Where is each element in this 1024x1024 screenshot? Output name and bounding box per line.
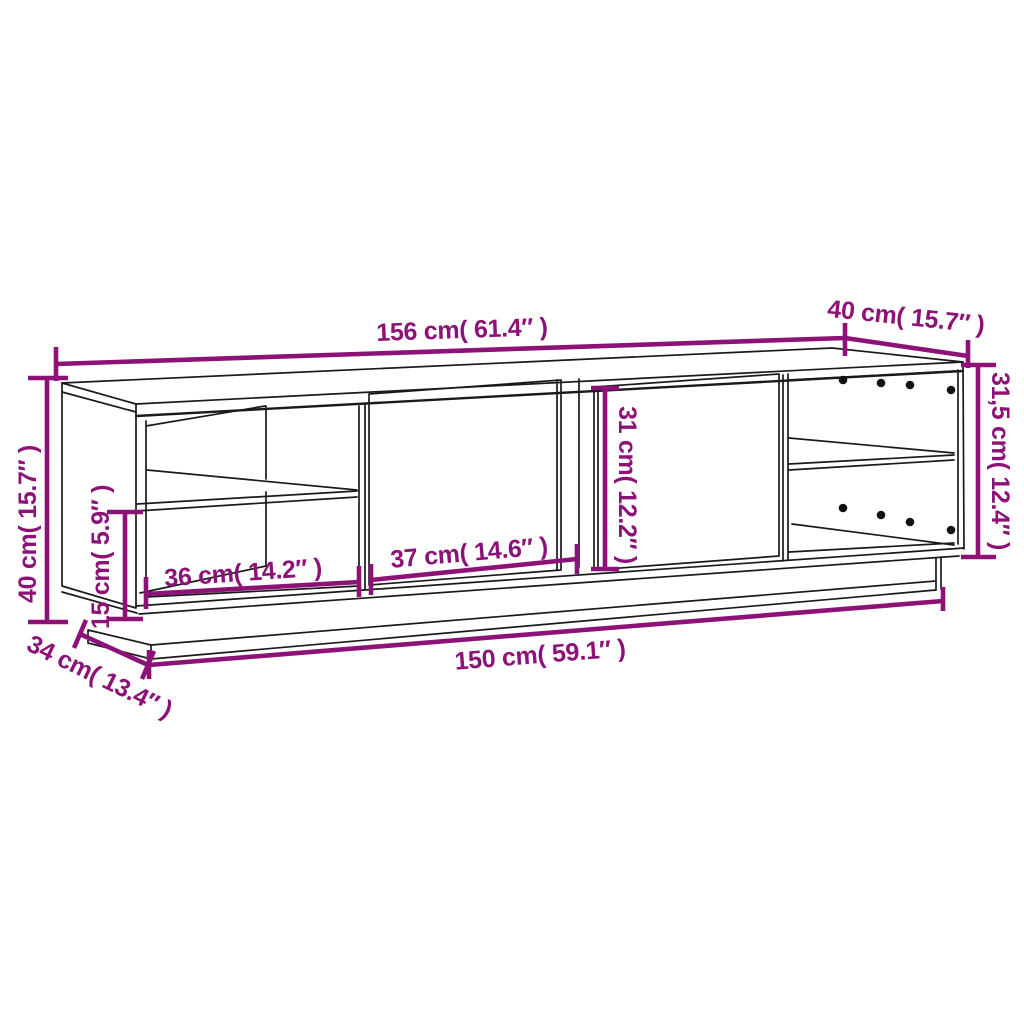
dim-door-height-label: 31 cm( 12.2″ ) xyxy=(613,406,641,564)
divider-left xyxy=(359,405,365,591)
peg-hole-dot xyxy=(947,526,956,535)
left-shelf xyxy=(137,470,357,511)
plinth-right-corner-edges xyxy=(936,557,941,590)
dimension-diagram: 156 cm( 61.4″ ) 40 cm( 15.7″ ) 31,5 cm( … xyxy=(0,0,1024,1024)
peg-hole-dot xyxy=(877,511,886,520)
dim-right-height-label: 31,5 cm( 12.4″ ) xyxy=(986,372,1014,550)
dim-top-depth-label: 40 cm( 15.7″ ) xyxy=(826,295,986,339)
dim-lower-opening-label: 15 cm( 5.9″ ) xyxy=(87,485,115,629)
dim-left-height-label: 40 cm( 15.7″ ) xyxy=(14,445,42,603)
peg-hole-dot xyxy=(839,376,848,385)
peg-hole-dot xyxy=(947,386,956,395)
right-compartment-bottom xyxy=(789,524,954,552)
shelf-pin-holes xyxy=(839,376,956,535)
dimension-diagram-page: 156 cm( 61.4″ ) 40 cm( 15.7″ ) 31,5 cm( … xyxy=(0,0,1024,1024)
cabinet-top-left-thickness-edge xyxy=(62,392,136,412)
left-compartment-top-back-edge xyxy=(146,406,265,426)
divider-right xyxy=(783,374,788,561)
dim-door-width-label: 37 cm( 14.6″ ) xyxy=(389,532,549,574)
dim-top-width-label: 156 cm( 61.4″ ) xyxy=(376,313,548,347)
peg-hole-dot xyxy=(906,518,915,527)
peg-hole-dot xyxy=(839,504,848,513)
right-shelf xyxy=(789,438,954,470)
right-compartment-top-back-edge xyxy=(789,371,956,380)
dim-top-depth-line xyxy=(845,338,968,356)
peg-hole-dot xyxy=(877,379,886,388)
plinth-left-side xyxy=(88,630,151,659)
peg-hole-dot xyxy=(906,381,915,390)
cabinet-right-front-edge xyxy=(963,362,964,549)
